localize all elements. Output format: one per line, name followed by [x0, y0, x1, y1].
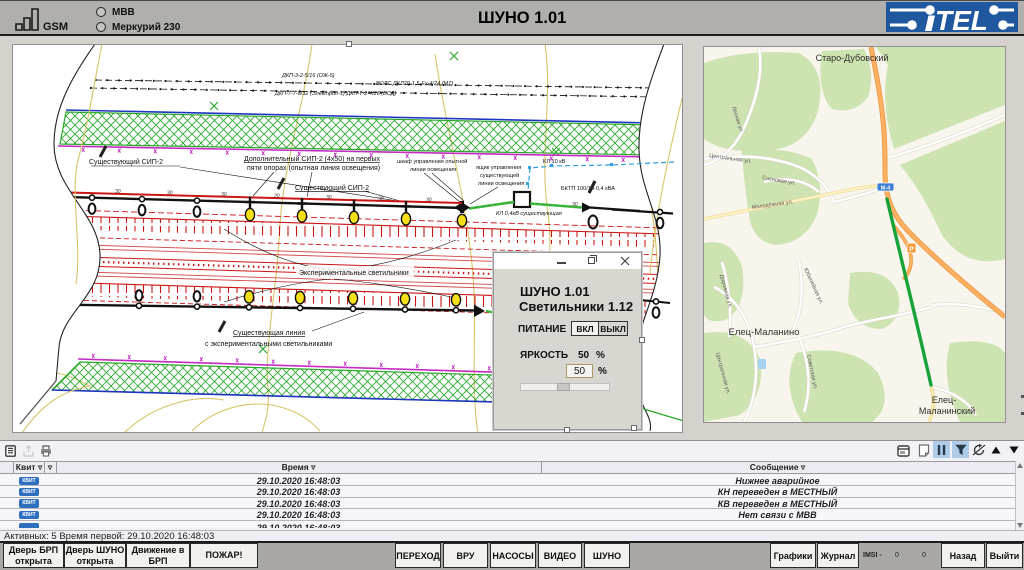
svg-text:пяти опорах (опытная линия осв: пяти опорах (опытная линия освещения) — [247, 165, 380, 172]
svg-text:Старо-Дубовский: Старо-Дубовский — [816, 53, 889, 63]
svg-text:Дополнительный СИП-2 (4х50) на: Дополнительный СИП-2 (4х50) на первых — [244, 155, 380, 163]
svg-text:ДКП-3-2-5/16 (ОЖ-5): ДКП-3-2-5/16 (ОЖ-5) — [281, 73, 335, 79]
svg-text:существующей: существующей — [480, 172, 519, 179]
svg-text:30: 30 — [115, 189, 121, 195]
svg-text:Экспериментальные светильники: Экспериментальные светильники — [299, 270, 409, 277]
svg-text:30: 30 — [426, 198, 432, 204]
svg-text:шкаф управления опытной: шкаф управления опытной — [397, 158, 467, 165]
svg-text:Существующий СИП-2: Существующий СИП-2 — [295, 184, 369, 192]
svg-text:с экспериментальными светильни: с экспериментальными светильниками — [205, 341, 332, 348]
svg-text:ящик управления: ящик управления — [476, 165, 521, 171]
svg-text:БКТП 100/10-0,4 кВА: БКТП 100/10-0,4 кВА — [561, 186, 615, 192]
svg-text:КЛ 10 кВ: КЛ 10 кВ — [543, 159, 566, 165]
svg-text:30: 30 — [326, 195, 332, 201]
svg-text:М-4: М-4 — [881, 185, 891, 191]
svg-text:TEL: TEL — [935, 5, 988, 32]
svg-text:Существующий СИП-2: Существующий СИП-2 — [89, 158, 163, 166]
svg-text:КЛ 0,4кВ существующая: КЛ 0,4кВ существующая — [496, 211, 562, 217]
svg-text:ВОЛС ДКЛ20-1,5-Ех-4/24 (МТ): ВОЛС ДКЛ20-1,5-Ех-4/24 (МТ) — [376, 81, 453, 87]
svg-text:30: 30 — [572, 202, 578, 208]
svg-text:Маланинский: Маланинский — [919, 406, 975, 416]
svg-text:30: 30 — [378, 196, 384, 202]
svg-text:линии освещения: линии освещения — [478, 181, 524, 187]
svg-text:Р: Р — [909, 246, 914, 253]
svg-text:Елец-Маланино: Елец-Маланино — [729, 327, 800, 338]
svg-text:30: 30 — [167, 190, 173, 196]
svg-text:Существующая линия: Существующая линия — [233, 330, 305, 337]
svg-text:линии освещения: линии освещения — [410, 167, 456, 173]
svg-text:30: 30 — [221, 192, 227, 198]
svg-text:Елец-: Елец- — [932, 395, 956, 405]
svg-text:ДКП-7-7-8/32 (Электрод-1) ДКП: ДКП-7-7-8/32 (Электрод-1) ДКП-7-2-4/28 (… — [274, 91, 396, 97]
svg-text:20: 20 — [273, 193, 280, 199]
